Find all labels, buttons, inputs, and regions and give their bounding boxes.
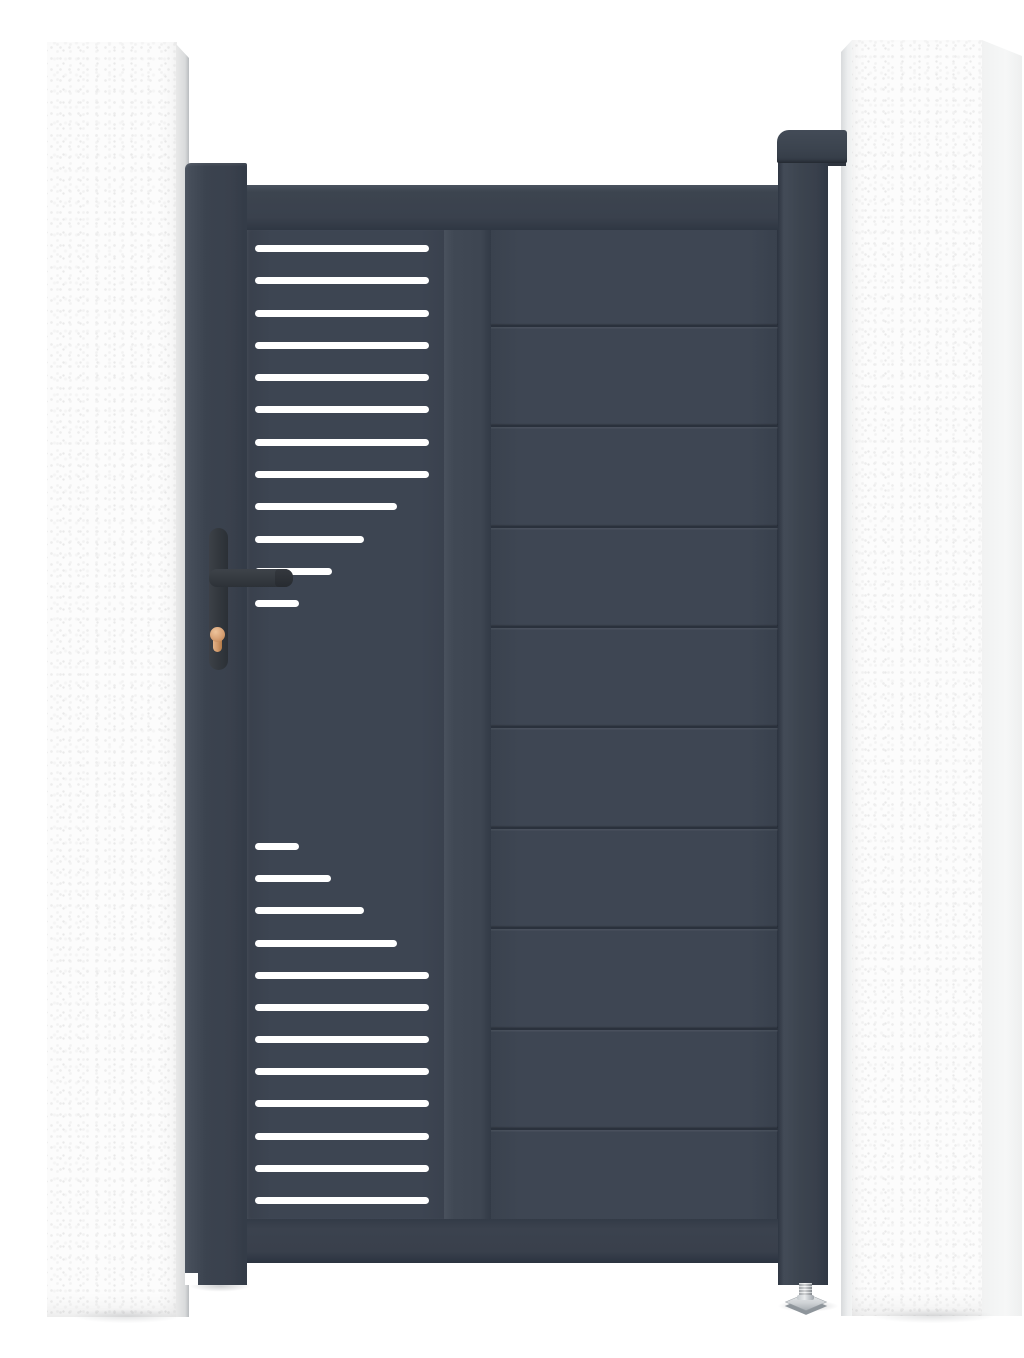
slat-cutout <box>255 1100 429 1107</box>
slat-cutout <box>255 471 429 478</box>
slat-cutout <box>255 342 429 349</box>
slat-cutout <box>255 1036 429 1043</box>
slat-cutout <box>255 1133 429 1140</box>
latch-post <box>185 163 247 1285</box>
board-groove <box>491 425 779 427</box>
slat-cutout <box>255 940 397 947</box>
slat-cutout <box>255 907 364 914</box>
gate-middle-stile <box>444 230 491 1219</box>
slat-cutout <box>255 843 299 850</box>
right-pillar-side <box>841 40 852 1316</box>
board-groove <box>491 626 779 628</box>
handle-lever-grip <box>275 569 293 587</box>
board-groove <box>491 1028 779 1030</box>
ground-shadow <box>52 1306 202 1326</box>
right-pillar <box>852 40 982 1316</box>
slat-cutout <box>255 374 429 381</box>
slat-cutout <box>255 406 429 413</box>
slat-cutout <box>255 1165 429 1172</box>
slat-cutout <box>255 1068 429 1075</box>
slat-cutout <box>255 1004 429 1011</box>
gate-bottom-rail <box>247 1219 779 1263</box>
latch-post-notch <box>185 1273 198 1285</box>
slat-cutout <box>255 972 429 979</box>
slat-cutout <box>255 277 429 284</box>
board-groove <box>491 325 779 327</box>
slat-cutout <box>255 1197 429 1204</box>
board-groove <box>491 526 779 528</box>
slat-cutout <box>255 439 429 446</box>
gate-board-panel <box>491 230 779 1219</box>
hinge-post <box>778 148 828 1285</box>
slat-cutout <box>255 503 397 510</box>
slat-cutout <box>255 875 331 882</box>
slat-cutout <box>255 310 429 317</box>
board-groove <box>491 726 779 728</box>
left-pillar <box>47 42 177 1317</box>
ground-shadow <box>848 1306 1018 1326</box>
board-groove <box>491 827 779 829</box>
board-groove <box>491 1128 779 1130</box>
slat-cutout <box>255 536 364 543</box>
adjustable-foot-nut <box>797 1295 814 1300</box>
board-groove <box>491 927 779 929</box>
gate-top-rail <box>247 185 779 230</box>
lock-cylinder <box>210 627 225 642</box>
slat-cutout <box>255 245 429 252</box>
slat-cutout <box>255 600 299 607</box>
gate-closer-cap <box>777 130 847 163</box>
right-pillar-edge <box>982 40 1022 1316</box>
stage <box>0 0 1024 1358</box>
